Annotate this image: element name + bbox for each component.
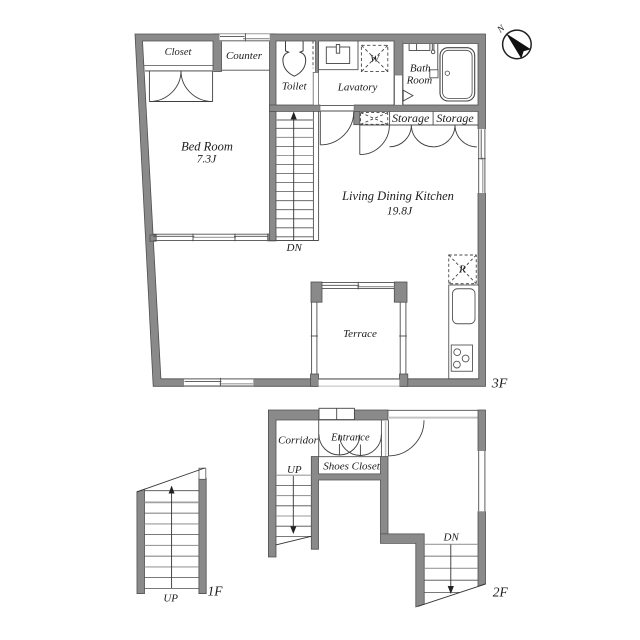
svg-text:UP: UP — [287, 464, 302, 476]
svg-text:19.8J: 19.8J — [387, 206, 413, 218]
svg-text:DN: DN — [286, 242, 303, 254]
svg-text:Counter: Counter — [226, 50, 263, 62]
svg-text:Closet: Closet — [165, 47, 193, 58]
svg-text:UP: UP — [163, 593, 178, 605]
svg-text:Room: Room — [406, 74, 433, 86]
svg-text:Shoes Closet: Shoes Closet — [323, 460, 380, 472]
svg-text:DN: DN — [443, 532, 460, 544]
svg-text:2F: 2F — [493, 584, 509, 599]
svg-text:Storage: Storage — [392, 111, 430, 125]
svg-text:Terrace: Terrace — [343, 328, 377, 340]
svg-text:Storage: Storage — [436, 111, 474, 125]
svg-text:N: N — [495, 23, 508, 36]
svg-text:W: W — [370, 53, 380, 65]
svg-text:R: R — [458, 264, 466, 276]
svg-text:Toilet: Toilet — [282, 80, 308, 92]
svg-text:3F: 3F — [491, 377, 508, 392]
svg-text:7.3J: 7.3J — [197, 154, 217, 166]
svg-text:Entrance: Entrance — [330, 433, 370, 444]
svg-text:Bed Room: Bed Room — [181, 140, 233, 154]
svg-text:Lavatory: Lavatory — [337, 81, 378, 93]
svg-text:Living Dining Kitchen: Living Dining Kitchen — [341, 189, 454, 203]
svg-text:Bath: Bath — [410, 63, 431, 75]
svg-text:1F: 1F — [208, 584, 224, 599]
svg-text:Corridor: Corridor — [278, 434, 318, 446]
